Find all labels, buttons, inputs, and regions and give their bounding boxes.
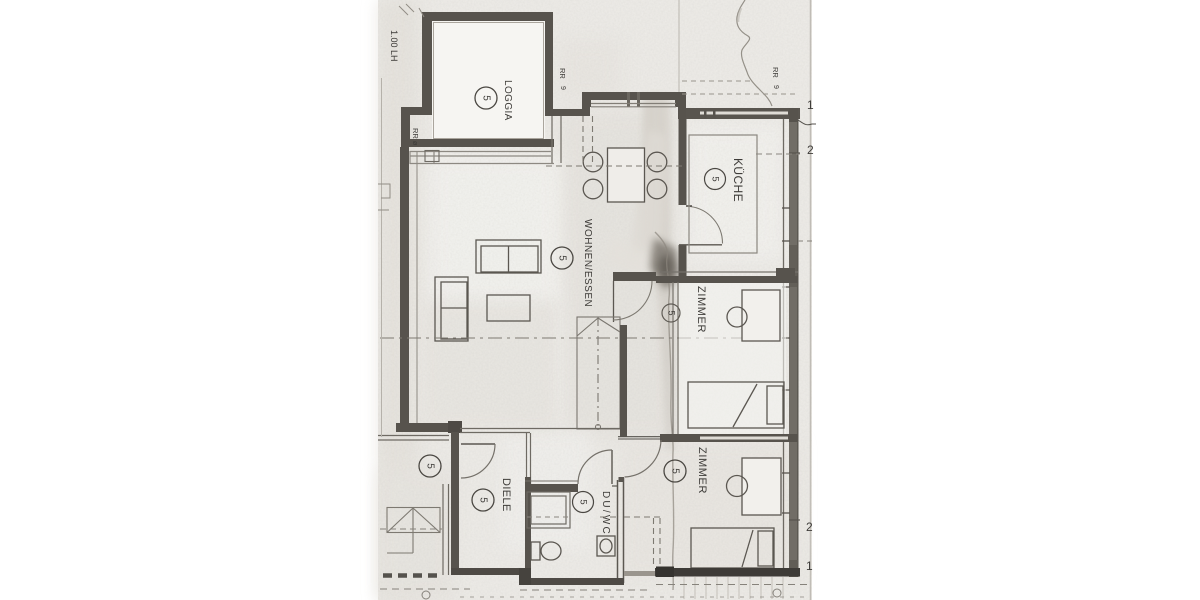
svg-text:ZIMMER: ZIMMER (696, 447, 708, 494)
svg-text:5: 5 (477, 497, 488, 503)
svg-text:5: 5 (577, 499, 588, 504)
svg-text:1.00 LH: 1.00 LH (389, 30, 399, 62)
svg-text:5: 5 (424, 463, 435, 469)
svg-text:RR: RR (558, 68, 567, 79)
svg-text:9: 9 (559, 86, 566, 90)
svg-text:5: 5 (480, 95, 491, 101)
svg-text:1: 1 (807, 98, 814, 112)
svg-text:RR ø: RR ø (411, 128, 420, 146)
svg-text:2: 2 (807, 143, 814, 157)
svg-text:DIELE: DIELE (500, 478, 512, 512)
svg-text:5: 5 (556, 255, 567, 261)
svg-text:KÜCHE: KÜCHE (731, 158, 745, 202)
svg-text:WOHNEN/ESSEN: WOHNEN/ESSEN (582, 219, 593, 307)
svg-text:5: 5 (669, 468, 680, 474)
svg-text:DU/WC: DU/WC (600, 491, 611, 536)
svg-text:5: 5 (667, 310, 677, 315)
svg-text:1: 1 (806, 559, 813, 573)
svg-text:9: 9 (772, 85, 779, 89)
svg-text:ZIMMER: ZIMMER (695, 286, 707, 333)
svg-text:5: 5 (709, 176, 720, 181)
svg-text:RR: RR (771, 67, 780, 78)
svg-text:2: 2 (806, 520, 813, 534)
svg-text:LOGGIA: LOGGIA (502, 80, 513, 121)
